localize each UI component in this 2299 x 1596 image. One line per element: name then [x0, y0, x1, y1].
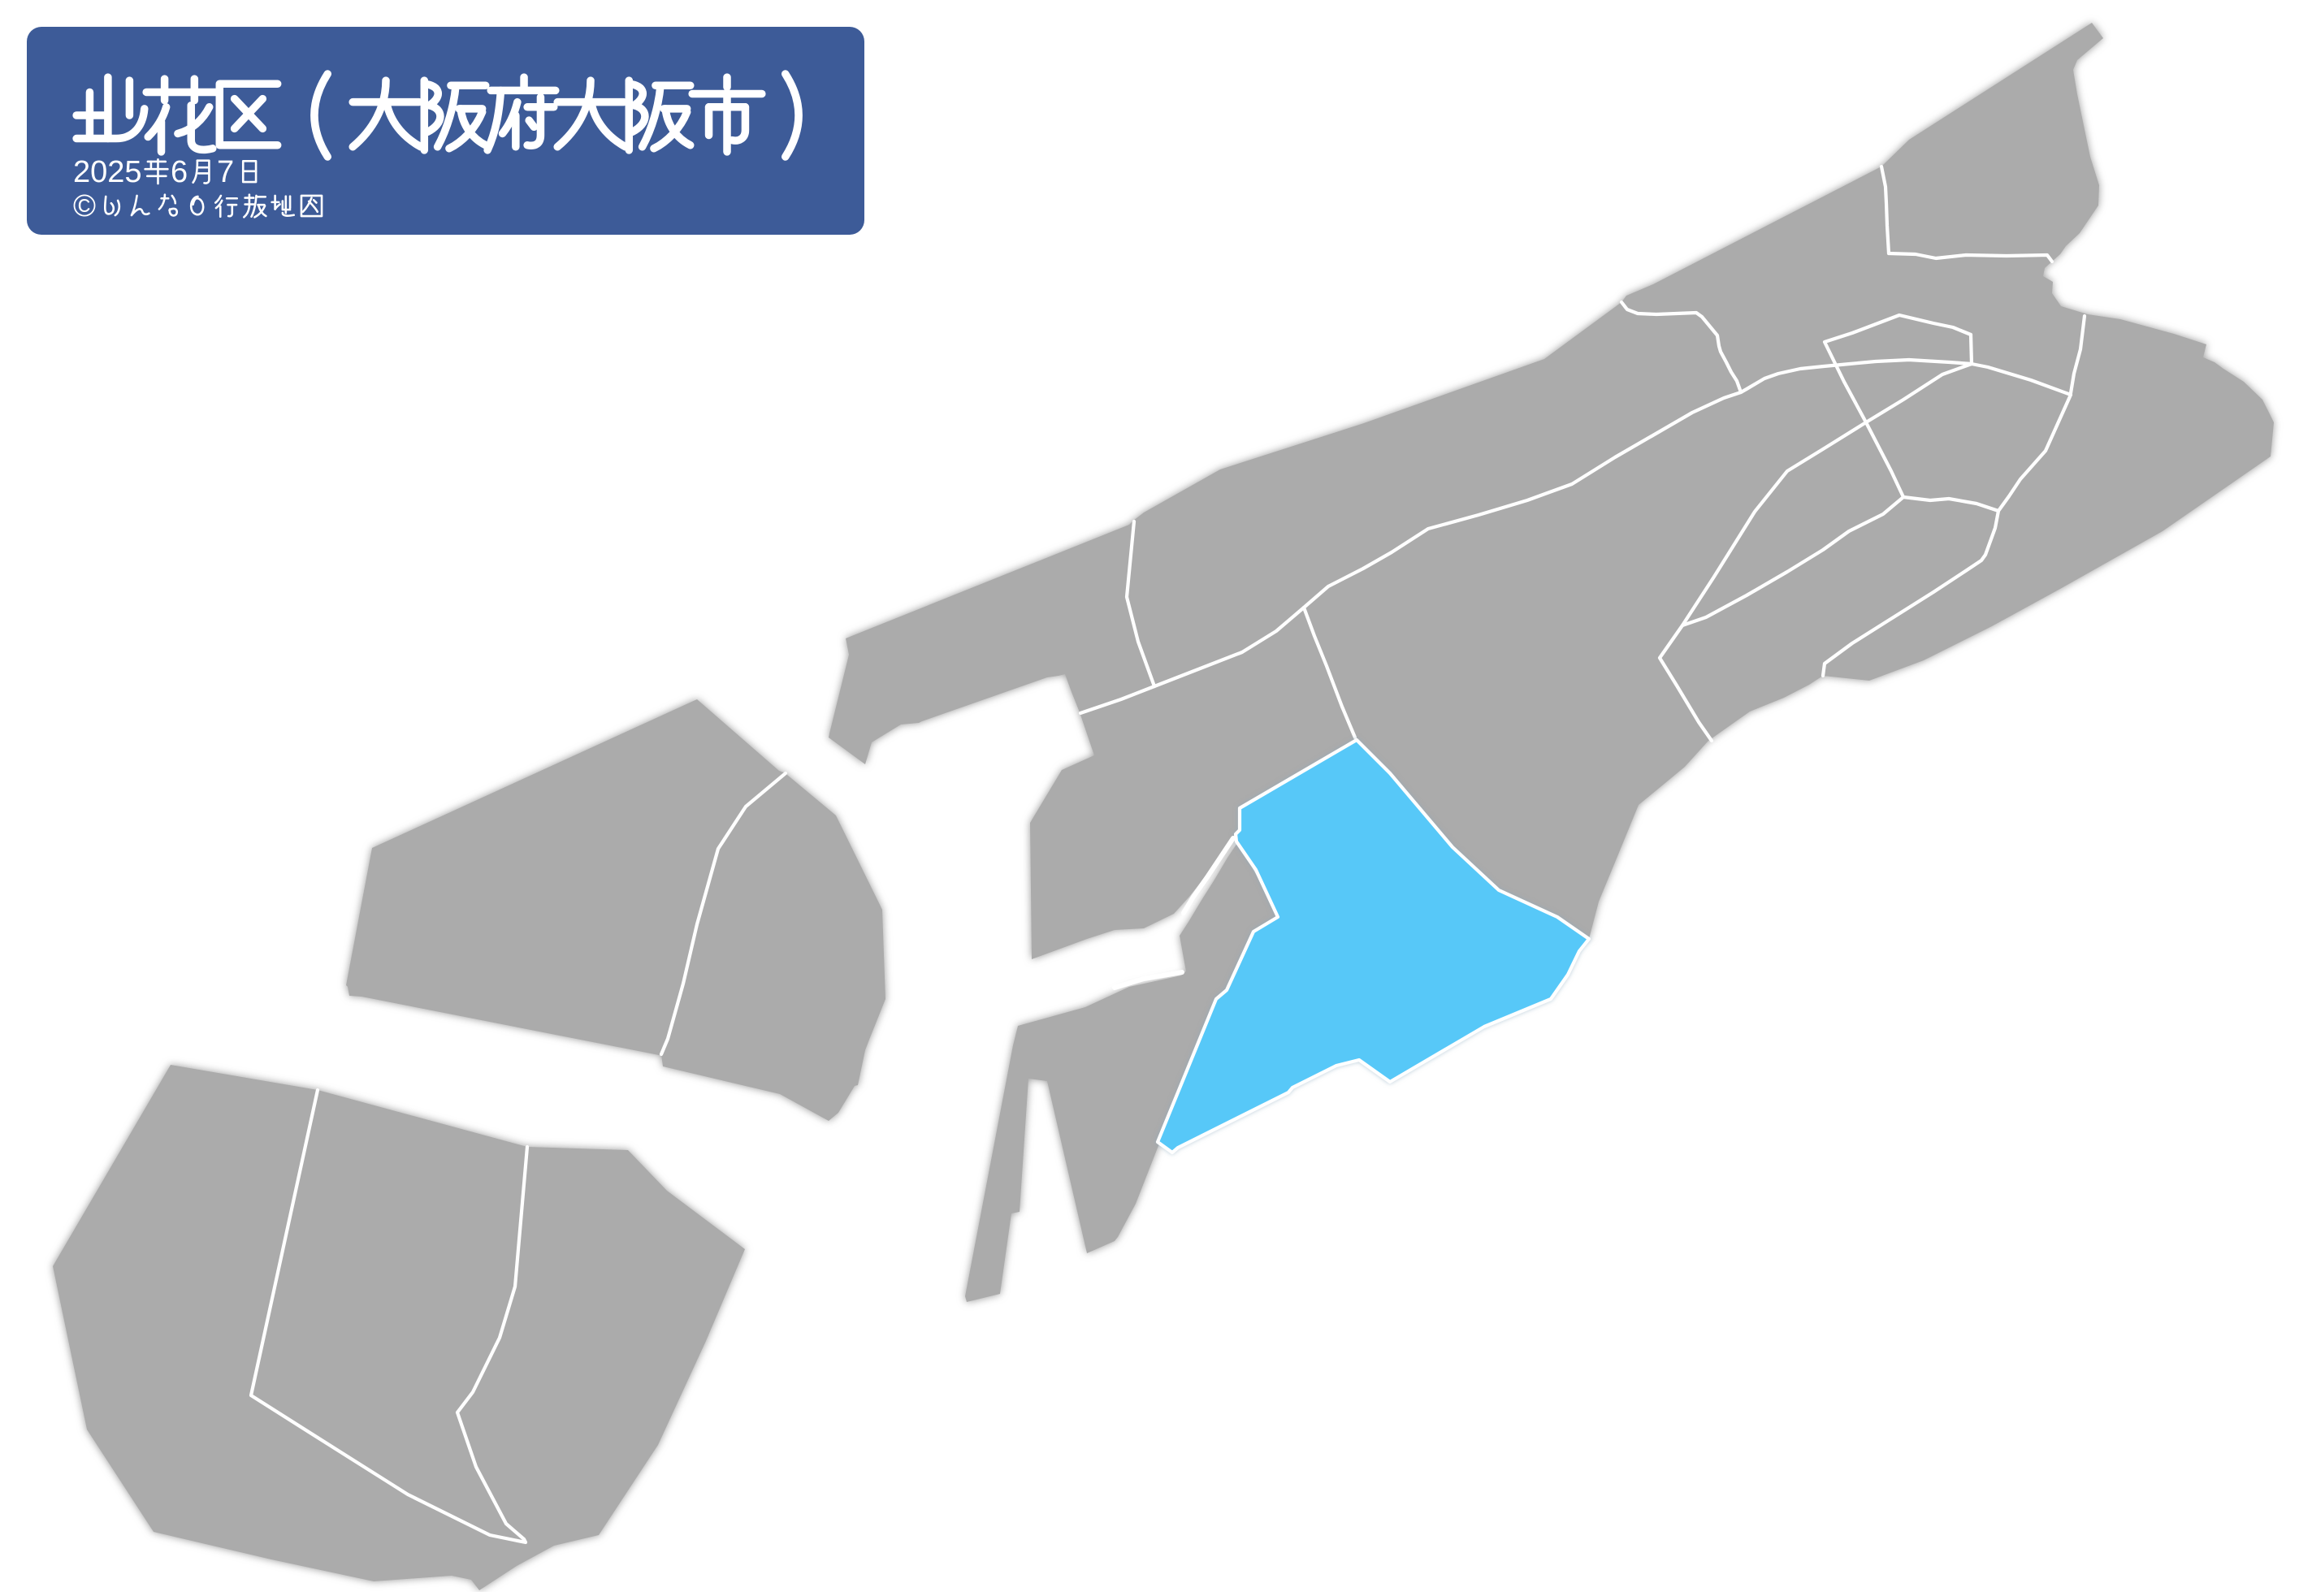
- svg-text:©: ©: [73, 189, 96, 223]
- svg-text:7: 7: [217, 155, 234, 189]
- svg-text:2025: 2025: [73, 155, 142, 189]
- svg-text:6: 6: [171, 155, 188, 189]
